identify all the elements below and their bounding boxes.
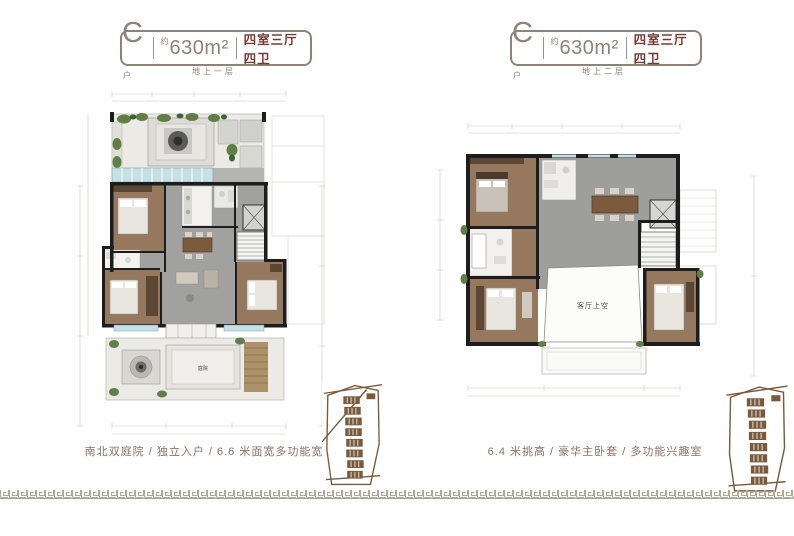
unit-badge-floor2: C户 约 630m² 四室三厅四卫 <box>510 30 702 66</box>
badge-divider <box>626 37 627 59</box>
bedroom-lower-right <box>237 262 283 324</box>
dining-table <box>592 188 638 221</box>
site-keyplan-left <box>322 381 384 491</box>
window-band-top <box>552 155 636 158</box>
caption-floor1: 南北双庭院 / 独立入户 / 6.6 米面宽多功能宽厅 <box>60 443 360 459</box>
bathroom-left <box>468 228 512 276</box>
elevator <box>243 205 265 230</box>
area-value: 约 630m² <box>551 35 619 61</box>
void-label: 客厅上空 <box>577 301 609 310</box>
badge-divider <box>543 37 544 59</box>
approx-label: 约 <box>161 36 169 47</box>
floorplan-brochure-page: C户 约 630m² 四室三厅四卫 地上一层 C户 约 630m² 四室三厅四卫… <box>0 0 794 536</box>
floor-label-1: 地上一层 <box>120 66 308 77</box>
room-layout-label: 四室三厅四卫 <box>634 29 700 67</box>
approx-label: 约 <box>551 36 559 47</box>
kitchen <box>182 186 212 226</box>
bedroom-lower-left <box>104 270 160 324</box>
floorplan-level2: 客厅上空 <box>432 116 762 432</box>
bathroom-center <box>542 160 576 200</box>
wood-steps <box>244 342 268 392</box>
void-over-living-room: 客厅上空 <box>544 265 642 342</box>
bedroom-bottom-left <box>468 278 538 342</box>
floorplan-level1: 庭院 <box>72 86 332 442</box>
courtyard-label: 庭院 <box>198 365 208 372</box>
stairs <box>237 232 265 260</box>
elevator <box>650 200 676 228</box>
site-keyplan-right <box>722 383 792 497</box>
hallway-floor <box>512 228 538 276</box>
stairs <box>640 232 676 266</box>
unit-badge-floor1: C户 约 630m² 四室三厅四卫 <box>120 30 312 66</box>
meander-border <box>0 487 794 498</box>
window-band-north <box>112 168 264 183</box>
badge-divider <box>236 37 237 59</box>
window-band-south <box>114 324 264 338</box>
bedroom-upper-left <box>112 184 164 252</box>
room-layout-label: 四室三厅四卫 <box>244 29 310 67</box>
area-value: 约 630m² <box>161 35 229 61</box>
balcony-outline <box>542 348 646 374</box>
caption-floor2: 6.4 米挑高 / 豪华主卧套 / 多功能兴趣室 <box>445 443 745 459</box>
badge-divider <box>153 37 154 59</box>
bedroom-bottom-right <box>645 271 697 342</box>
south-courtyard: 庭院 <box>106 338 284 401</box>
floor-label-2: 地上二层 <box>510 66 698 77</box>
